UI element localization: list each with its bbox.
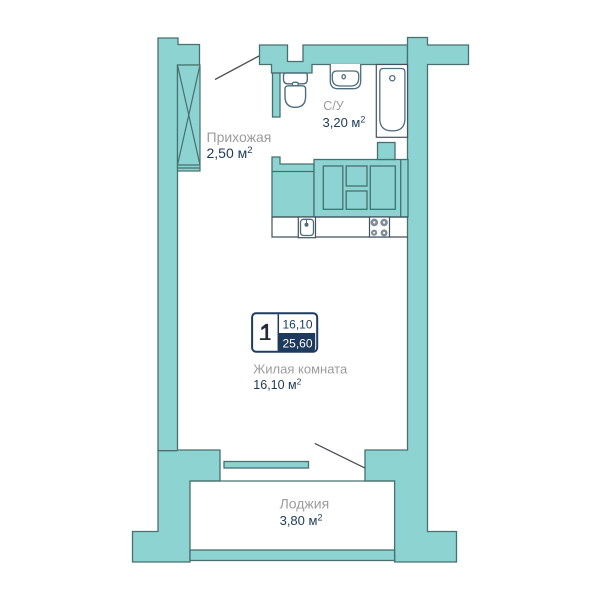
- svg-text:25,60: 25,60: [282, 337, 312, 351]
- svg-text:3,80 м2: 3,80 м2: [280, 512, 323, 528]
- svg-text:2,50 м2: 2,50 м2: [207, 145, 253, 161]
- svg-text:3,20 м2: 3,20 м2: [323, 114, 366, 129]
- svg-text:16,10: 16,10: [282, 317, 312, 331]
- svg-text:С/У: С/У: [323, 99, 344, 113]
- svg-text:Прихожая: Прихожая: [207, 129, 272, 145]
- svg-text:Жилая комната: Жилая комната: [253, 361, 348, 376]
- svg-text:Лоджия: Лоджия: [280, 496, 330, 512]
- svg-text:16,10 м2: 16,10 м2: [253, 377, 301, 392]
